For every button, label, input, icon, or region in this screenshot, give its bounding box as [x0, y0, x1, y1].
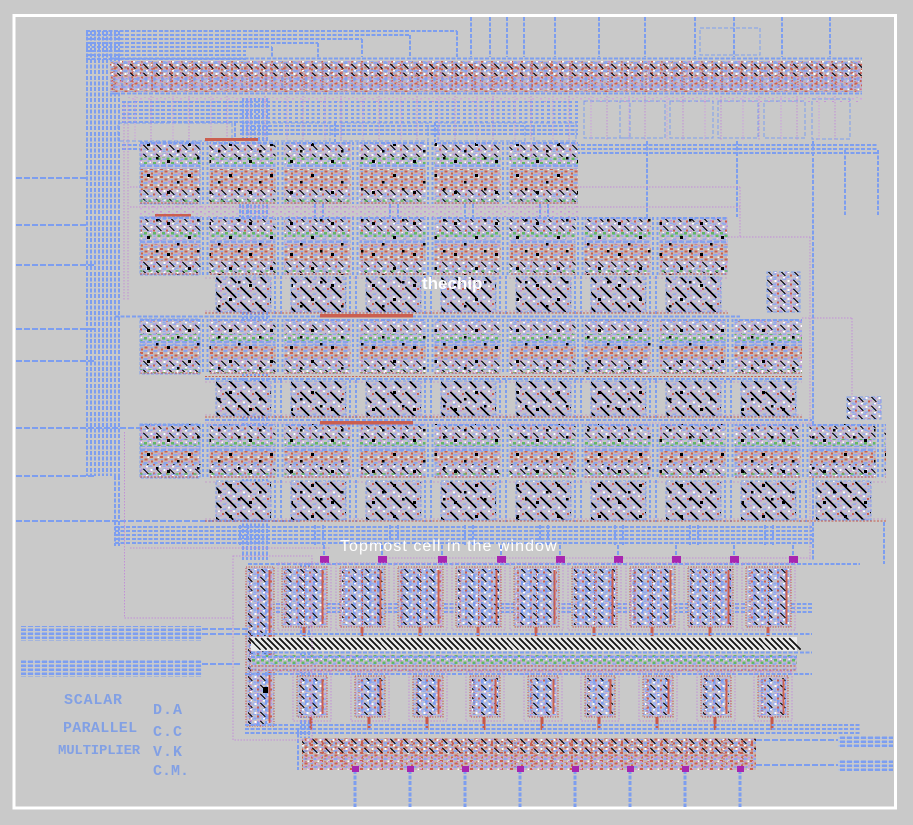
svg-text:V.K: V.K [153, 744, 183, 761]
svg-text:SCALAR: SCALAR [64, 692, 123, 709]
svg-text:Topmost cell in the window: Topmost cell in the window [340, 538, 558, 555]
svg-text:D.A: D.A [153, 702, 183, 719]
svg-text:PARALLEL: PARALLEL [63, 720, 137, 737]
svg-text:C.C: C.C [153, 724, 183, 741]
svg-text:C.M.: C.M. [153, 763, 189, 780]
svg-text:thechip: thechip [422, 274, 482, 293]
svg-text:MULTIPLIER: MULTIPLIER [58, 743, 141, 759]
